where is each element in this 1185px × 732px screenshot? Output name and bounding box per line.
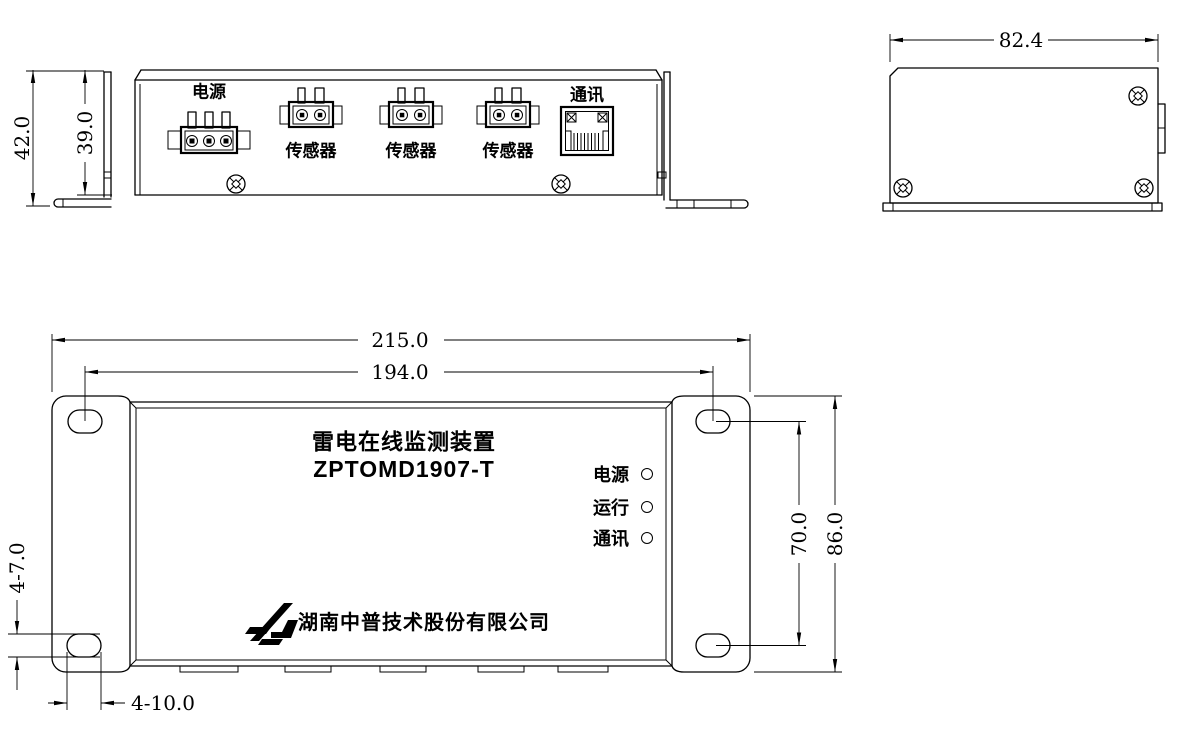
dim-top-hole-span-v: 70.0	[716, 422, 811, 646]
dim-label-82-4: 82.4	[999, 28, 1044, 52]
top-view: 雷电在线监测装置 ZPTOMD1907-T 电源 运行 通讯 湖南中普技术股份有…	[5, 328, 847, 715]
sensor-port-label-2: 传感器	[385, 141, 438, 161]
led-row-run: 运行	[593, 497, 653, 518]
power-connector	[168, 112, 250, 153]
dim-label-4-10: 4-10.0	[131, 691, 195, 715]
led-label-run: 运行	[593, 497, 629, 518]
led-comm-indicator	[642, 533, 653, 544]
device-dimension-drawing: 电源 传感器 传感器	[0, 0, 1185, 732]
led-run-indicator	[642, 502, 653, 513]
led-power-indicator	[642, 469, 653, 480]
bottom-notch	[285, 666, 331, 672]
led-row-power: 电源	[593, 464, 653, 485]
slot-hole-bottom-left	[67, 634, 101, 657]
screw-icon	[552, 175, 570, 193]
company-name: 湖南中普技术股份有限公司	[298, 610, 550, 634]
led-row-comm: 通讯	[593, 529, 653, 549]
dim-front-body-height: 39.0	[73, 70, 112, 195]
dim-label-194: 194.0	[371, 360, 428, 384]
dim-label-4-7: 4-7.0	[5, 542, 29, 593]
bottom-notch	[180, 666, 238, 672]
sensor-port-label-1: 传感器	[285, 141, 338, 161]
front-right-bracket	[658, 72, 748, 208]
dim-top-hole-span-h: 194.0	[85, 360, 713, 421]
front-view: 电源 传感器 传感器	[10, 70, 748, 208]
power-port-label: 电源	[192, 82, 226, 102]
bottom-notch	[478, 666, 524, 672]
company-logo	[245, 603, 298, 645]
sensor-connector-3	[477, 88, 539, 127]
sensor-port-label-3: 传感器	[482, 141, 535, 161]
screw-icon	[1135, 179, 1153, 197]
dim-label-215: 215.0	[371, 328, 428, 352]
dim-label-70: 70.0	[787, 512, 811, 557]
ethernet-port	[561, 107, 613, 155]
device-model: ZPTOMD1907-T	[313, 456, 495, 482]
bottom-notch	[558, 666, 608, 672]
sensor-connector-1	[280, 88, 342, 127]
top-left-flange	[52, 396, 130, 672]
dim-label-39: 39.0	[73, 111, 97, 156]
technical-drawing-canvas: 电源 传感器 传感器	[0, 0, 1185, 732]
sensor-connector-2	[380, 88, 442, 127]
side-enclosure-outline	[883, 68, 1165, 211]
bottom-notch	[380, 666, 426, 672]
dim-side-width: 82.4	[890, 28, 1158, 62]
dim-slot-width: 4-10.0	[48, 652, 195, 715]
screw-icon	[227, 175, 245, 193]
led-label-power: 电源	[593, 464, 629, 485]
led-label-comm: 通讯	[593, 529, 629, 549]
side-view: 82.4	[883, 28, 1165, 211]
dim-label-86: 86.0	[823, 512, 847, 557]
screw-icon	[1129, 87, 1147, 105]
top-right-flange	[672, 396, 750, 672]
device-title: 雷电在线监测装置	[312, 430, 496, 455]
comm-port-label: 通讯	[570, 86, 604, 105]
screw-icon	[894, 179, 912, 197]
dim-label-42: 42.0	[10, 116, 34, 161]
